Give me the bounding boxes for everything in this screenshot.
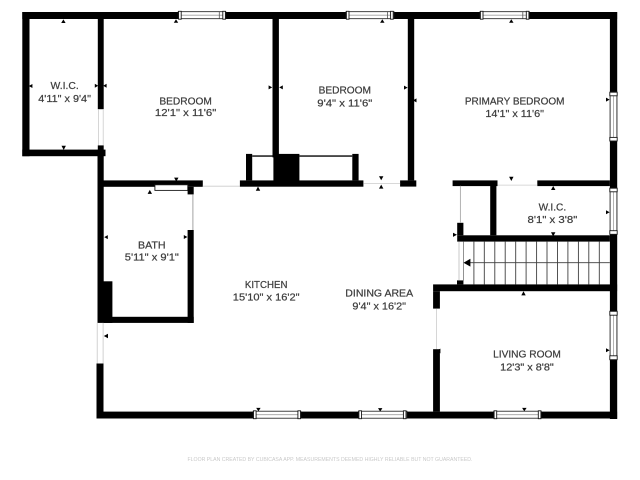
svg-text:FLOOR PLAN CREATED BY CUBICASA: FLOOR PLAN CREATED BY CUBICASA APP. MEAS… — [188, 457, 473, 463]
svg-text:BEDROOM: BEDROOM — [319, 86, 371, 97]
svg-text:8'1" x 3'8": 8'1" x 3'8" — [528, 215, 578, 226]
svg-text:4'11" x 9'4": 4'11" x 9'4" — [38, 94, 91, 105]
svg-text:12'3" x 8'8": 12'3" x 8'8" — [500, 362, 554, 373]
svg-text:5'11" x 9'1": 5'11" x 9'1" — [125, 253, 179, 264]
svg-text:LIVING ROOM: LIVING ROOM — [493, 350, 561, 361]
svg-text:KITCHEN: KITCHEN — [245, 280, 288, 291]
svg-text:W.I.C.: W.I.C. — [51, 81, 79, 92]
svg-text:BEDROOM: BEDROOM — [159, 97, 212, 108]
svg-text:12'1" x 11'6": 12'1" x 11'6" — [155, 108, 217, 119]
svg-text:W.I.C.: W.I.C. — [539, 202, 567, 213]
svg-text:9'4" x 16'2": 9'4" x 16'2" — [352, 301, 406, 312]
svg-text:14'1" x 11'6": 14'1" x 11'6" — [485, 109, 544, 120]
svg-text:PRIMARY BEDROOM: PRIMARY BEDROOM — [465, 97, 565, 108]
svg-text:9'4" x 11'6": 9'4" x 11'6" — [317, 98, 372, 109]
svg-text:15'10" x 16'2": 15'10" x 16'2" — [233, 293, 300, 304]
svg-text:BATH: BATH — [138, 241, 166, 252]
svg-text:DINING AREA: DINING AREA — [345, 289, 413, 300]
